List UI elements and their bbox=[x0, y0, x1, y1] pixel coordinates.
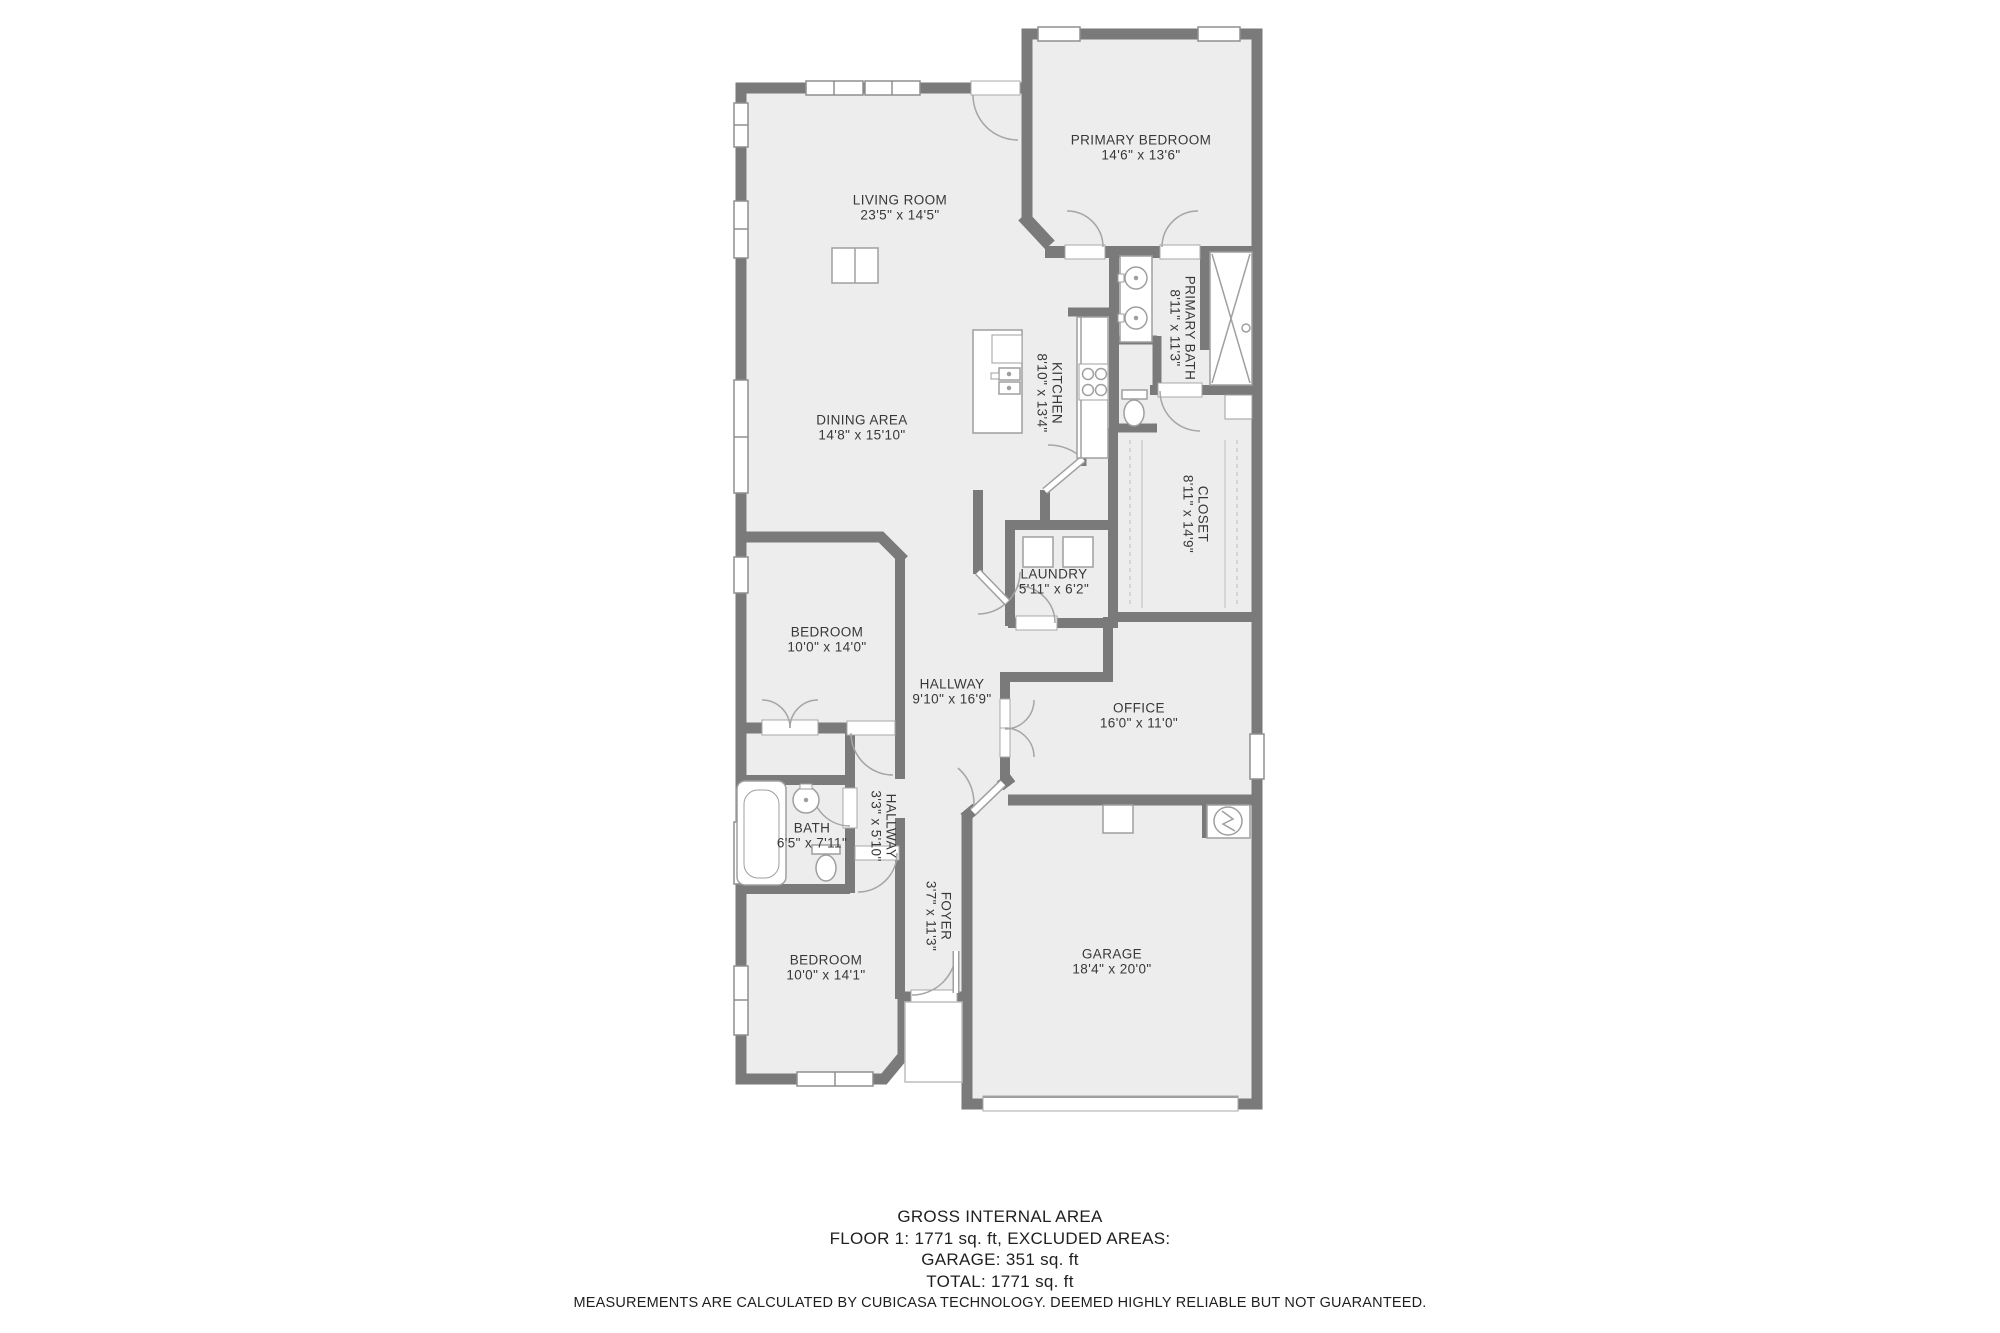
floor-plan-page: LIVING ROOM23'5" x 14'5"PRIMARY BEDROOM1… bbox=[0, 0, 2000, 1333]
bathtub bbox=[737, 781, 786, 885]
garage-door-gap bbox=[983, 1096, 1238, 1111]
disclaimer-line: MEASUREMENTS ARE CALCULATED BY CUBICASA … bbox=[0, 1292, 2000, 1314]
window-left-living-1 bbox=[734, 103, 748, 147]
exterior-walls bbox=[741, 34, 1257, 1104]
kitchen-island bbox=[973, 330, 1022, 433]
room-label-primary-bedroom-name: PRIMARY BEDROOM bbox=[1071, 133, 1212, 148]
door-gap-living-top bbox=[971, 81, 1020, 95]
gross-internal-area-title: GROSS INTERNAL AREA bbox=[0, 1206, 2000, 1228]
door-gap-closet bbox=[1158, 383, 1202, 397]
room-label-primary-bedroom-dims: 14'6" x 13'6" bbox=[1101, 148, 1180, 163]
washer bbox=[1023, 537, 1053, 567]
room-label-closet-name: CLOSET bbox=[1196, 486, 1211, 542]
room-label-primary-bath-name: PRIMARY BATH bbox=[1183, 276, 1198, 381]
window-left-bedroom-upper bbox=[734, 557, 748, 593]
room-label-bath-dims: 6'5" x 7'11" bbox=[777, 836, 847, 851]
room-label-kitchen-dims: 8'10" x 13'4" bbox=[1035, 353, 1050, 432]
room-label-bedroom-lower-name: BEDROOM bbox=[790, 953, 863, 968]
room-label-closet-dims: 8'11" x 14'9" bbox=[1181, 475, 1196, 553]
room-label-foyer-name: FOYER bbox=[939, 892, 954, 941]
french-door-leaf-2 bbox=[1000, 728, 1010, 757]
floor1-area-line: FLOOR 1: 1771 sq. ft, EXCLUDED AREAS: bbox=[0, 1228, 2000, 1250]
room-label-bath-name: BATH bbox=[794, 821, 831, 836]
room-label-bedroom-lower-dims: 10'0" x 14'1" bbox=[786, 968, 865, 983]
window-bedroom-lower-bottom bbox=[797, 1072, 873, 1086]
total-area-line: TOTAL: 1771 sq. ft bbox=[0, 1271, 2000, 1293]
room-label-garage-name: GARAGE bbox=[1082, 947, 1142, 962]
front-porch bbox=[905, 1002, 962, 1082]
window-primary-bedroom-2 bbox=[1198, 27, 1240, 41]
room-label-dining-area-dims: 14'8" x 15'10" bbox=[818, 428, 905, 443]
room-label-laundry-dims: 5'11" x 6'2" bbox=[1019, 582, 1089, 597]
room-label-bedroom-upper-name: BEDROOM bbox=[791, 625, 864, 640]
floor-plan-canvas: LIVING ROOM23'5" x 14'5"PRIMARY BEDROOM1… bbox=[0, 0, 2000, 1333]
room-label-dining-area-name: DINING AREA bbox=[816, 413, 907, 428]
room-label-bedroom-upper-dims: 10'0" x 14'0" bbox=[787, 640, 866, 655]
room-label-hallway-small-name: HALLWAY bbox=[884, 794, 899, 859]
door-gap-primary-1 bbox=[1065, 245, 1105, 259]
room-label-hallway-main-name: HALLWAY bbox=[920, 677, 985, 692]
utility-box bbox=[1103, 805, 1133, 833]
room-label-living-room-name: LIVING ROOM bbox=[853, 193, 947, 208]
room-label-primary-bath-dims: 8'11" x 11'3" bbox=[1168, 289, 1183, 366]
door-gap-laundry bbox=[1016, 616, 1057, 630]
window-top-living-2 bbox=[865, 81, 920, 95]
kitchen-counter bbox=[1077, 317, 1108, 458]
primary-vanity bbox=[1118, 256, 1152, 342]
room-label-hallway-main-dims: 9'10" x 16'9" bbox=[912, 692, 991, 707]
area-summary: GROSS INTERNAL AREA FLOOR 1: 1771 sq. ft… bbox=[0, 1206, 2000, 1314]
door-gap-primary-2 bbox=[1160, 245, 1200, 259]
room-label-laundry-name: LAUNDRY bbox=[1020, 567, 1087, 582]
window-left-living-2 bbox=[734, 201, 748, 258]
room-label-office-dims: 16'0" x 11'0" bbox=[1100, 716, 1178, 731]
garage-area-line: GARAGE: 351 sq. ft bbox=[0, 1249, 2000, 1271]
door-gap-bath bbox=[843, 788, 857, 828]
window-left-dining bbox=[734, 380, 748, 493]
room-label-garage-dims: 18'4" x 20'0" bbox=[1072, 962, 1151, 977]
french-door-leaf-1 bbox=[1000, 699, 1010, 728]
room-label-kitchen-name: KITCHEN bbox=[1050, 362, 1065, 424]
living-cabinet bbox=[832, 248, 878, 283]
room-label-foyer-dims: 3'7" x 11'3" bbox=[924, 881, 939, 951]
room-label-living-room-dims: 23'5" x 14'5" bbox=[860, 208, 939, 223]
dryer bbox=[1063, 537, 1093, 567]
window-office-right bbox=[1250, 734, 1264, 779]
room-label-hallway-small-dims: 3'3" x 5'10" bbox=[869, 790, 884, 861]
electrical-panel bbox=[1207, 805, 1250, 838]
door-gap-bedroom-upper bbox=[847, 721, 895, 735]
primary-shower bbox=[1210, 252, 1252, 385]
room-label-office-name: OFFICE bbox=[1113, 701, 1165, 716]
window-primary-bedroom-1 bbox=[1038, 27, 1080, 41]
window-left-bedroom-lower bbox=[734, 966, 748, 1035]
window-top-living-1 bbox=[806, 81, 863, 95]
